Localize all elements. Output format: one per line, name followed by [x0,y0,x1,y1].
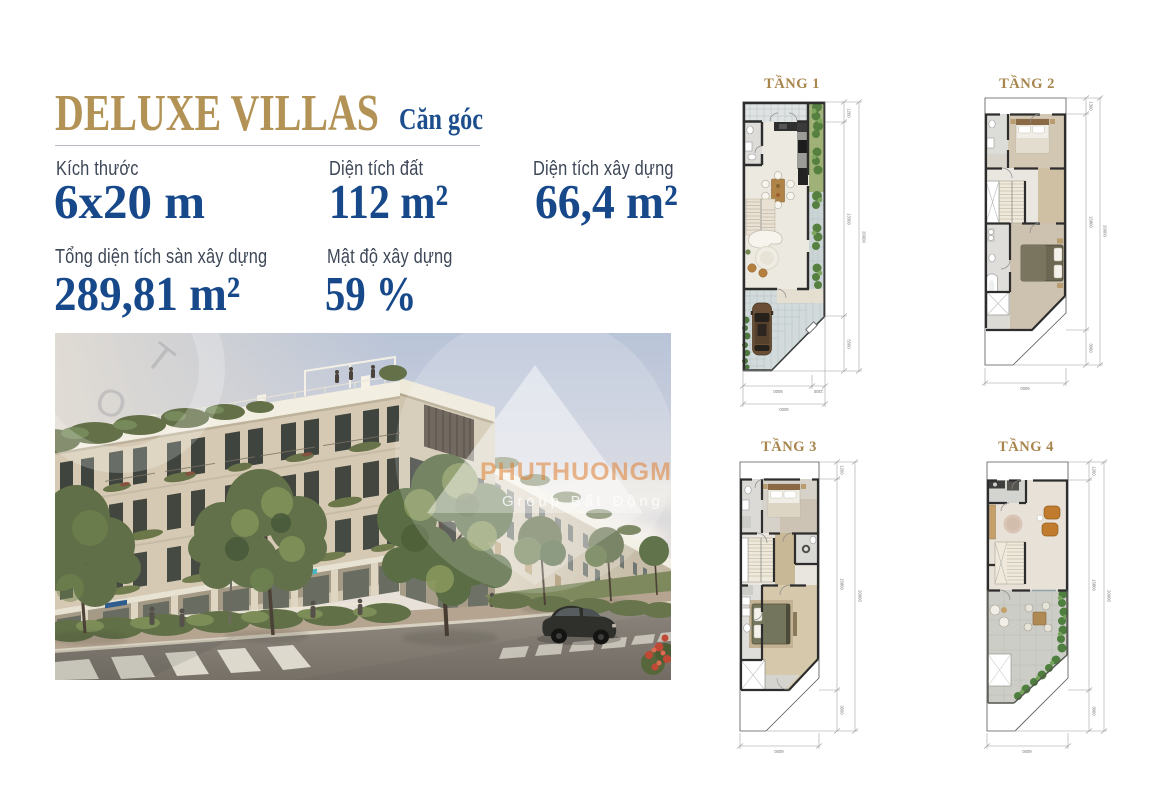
svg-text:6000: 6000 [1020,386,1030,391]
svg-text:6000: 6000 [774,749,784,754]
svg-text:3000: 3000 [1092,706,1097,716]
svg-text:TẦNG 4: TẦNG 4 [998,438,1054,455]
svg-text:1300: 1300 [1089,101,1094,111]
svg-text:15800: 15800 [1092,579,1097,591]
svg-text:6000: 6000 [779,407,789,412]
svg-text:1300: 1300 [813,389,823,394]
svg-text:1200: 1200 [840,465,845,475]
svg-text:3000: 3000 [840,705,845,715]
svg-text:20000: 20000 [862,231,867,243]
svg-text:20000: 20000 [1107,590,1112,602]
svg-text:3000: 3000 [1089,343,1094,353]
svg-text:6000: 6000 [1022,749,1032,754]
svg-text:1200: 1200 [1092,466,1097,476]
svg-text:TẦNG 2: TẦNG 2 [999,75,1055,92]
svg-text:Group Bất Động Sản: Group Bất Động Sản [502,493,671,510]
svg-text:TẦNG 1: TẦNG 1 [764,75,820,92]
svg-text:5000: 5000 [773,389,783,394]
svg-text:20000: 20000 [1103,225,1108,237]
svg-text:15800: 15800 [840,578,845,590]
svg-text:1200: 1200 [847,108,852,118]
svg-text:PHUTHUONGMAI.CO: PHUTHUONGMAI.CO [480,458,671,486]
svg-text:13300: 13300 [847,213,852,225]
svg-text:20000: 20000 [858,590,863,602]
svg-text:5500: 5500 [847,339,852,349]
svg-text:15800: 15800 [1089,216,1094,228]
svg-text:TẦNG 3: TẦNG 3 [761,438,817,455]
